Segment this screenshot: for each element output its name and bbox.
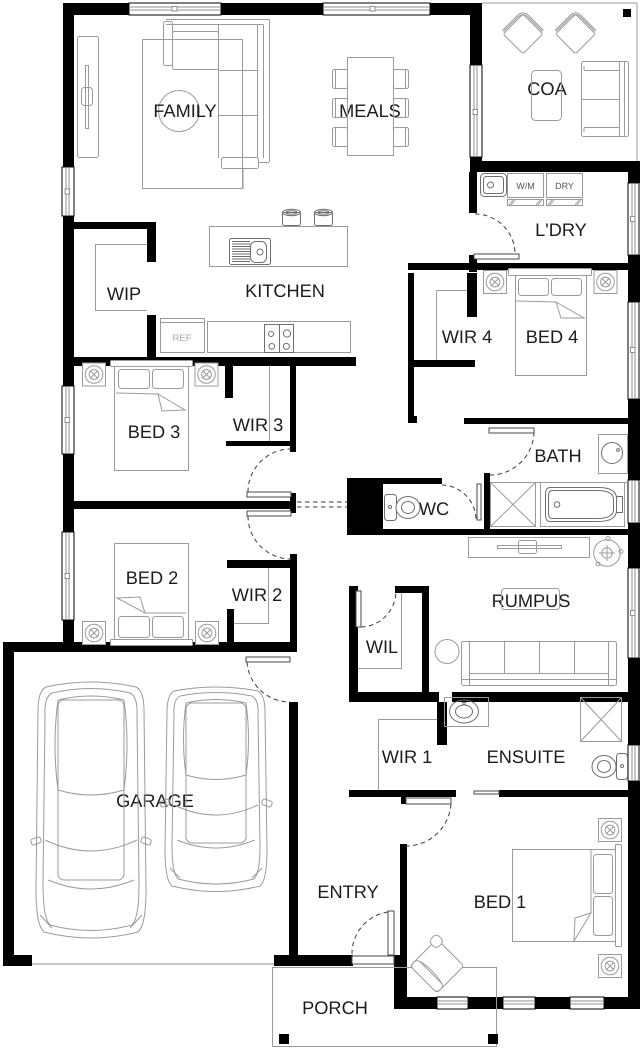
svg-text:WIP: WIP bbox=[107, 284, 141, 304]
svg-text:MEALS: MEALS bbox=[339, 101, 401, 121]
svg-text:BED 4: BED 4 bbox=[526, 327, 579, 347]
svg-text:W/M: W/M bbox=[516, 181, 535, 191]
svg-text:ENTRY: ENTRY bbox=[317, 882, 378, 902]
svg-text:BED 1: BED 1 bbox=[474, 892, 527, 912]
svg-text:RUMPUS: RUMPUS bbox=[492, 591, 571, 611]
svg-text:WIL: WIL bbox=[366, 637, 398, 657]
svg-text:WIR 3: WIR 3 bbox=[233, 415, 284, 435]
svg-text:PORCH: PORCH bbox=[302, 998, 368, 1018]
svg-text:BED 2: BED 2 bbox=[126, 568, 179, 588]
svg-text:WIR 4: WIR 4 bbox=[442, 327, 493, 347]
svg-text:GARAGE: GARAGE bbox=[116, 791, 194, 811]
svg-text:WIR 1: WIR 1 bbox=[382, 747, 433, 767]
svg-text:FAMILY: FAMILY bbox=[153, 101, 216, 121]
svg-text:BATH: BATH bbox=[534, 446, 581, 466]
svg-text:WIR 2: WIR 2 bbox=[232, 585, 283, 605]
svg-text:BED 3: BED 3 bbox=[128, 422, 181, 442]
svg-text:WC: WC bbox=[419, 499, 449, 519]
svg-text:DRY: DRY bbox=[555, 181, 574, 191]
svg-text:KITCHEN: KITCHEN bbox=[245, 281, 325, 301]
svg-text:ENSUITE: ENSUITE bbox=[487, 747, 566, 767]
svg-text:L'DRY: L'DRY bbox=[535, 220, 587, 240]
svg-text:REF: REF bbox=[173, 333, 192, 344]
